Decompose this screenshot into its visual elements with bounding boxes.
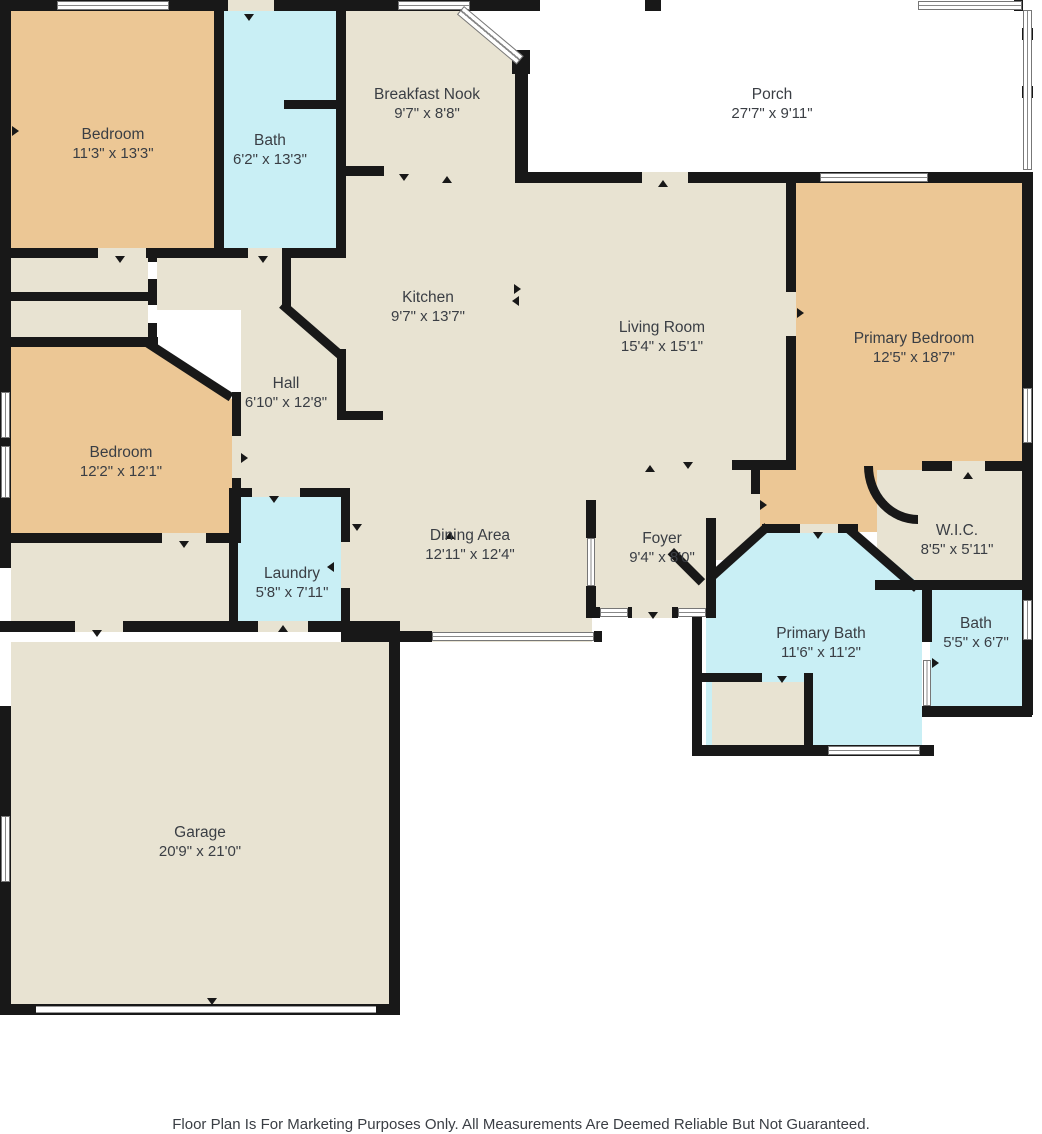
wall-segment <box>786 183 796 292</box>
door-opening <box>228 0 274 11</box>
room-label-breakfast-nook: Breakfast Nook 9'7" x 8'8" <box>374 85 480 123</box>
wall-segment <box>922 580 932 642</box>
room-name: Bath <box>233 131 307 150</box>
room-label-porch: Porch 27'7" x 9'11" <box>731 85 812 123</box>
room-label-laundry: Laundry 5'8" x 7'11" <box>256 564 329 602</box>
room-dims: 9'4" x 8'0" <box>629 548 695 567</box>
window-glyph <box>918 1 1022 10</box>
room-fill-primary-bedroom <box>796 183 1022 470</box>
room-fill-closet-1 <box>11 258 148 292</box>
wall-segment <box>232 392 241 436</box>
wall-segment <box>702 673 762 682</box>
room-name: W.I.C. <box>921 521 994 540</box>
door-arrow-icon <box>207 998 217 1005</box>
room-dims: 6'10" x 12'8" <box>245 393 327 412</box>
door-opening <box>341 542 350 588</box>
wall-segment <box>688 172 786 183</box>
door-arrow-icon <box>645 465 655 472</box>
wall-segment <box>692 614 702 756</box>
wall-segment <box>586 607 600 618</box>
wall-segment <box>0 621 75 632</box>
wall-segment <box>706 518 716 614</box>
window-glyph <box>1023 10 1032 170</box>
door-opening <box>952 461 985 471</box>
door-arrow-icon <box>777 676 787 683</box>
window-glyph <box>432 632 594 641</box>
room-label-hall: Hall 6'10" x 12'8" <box>245 374 327 412</box>
room-label-living-room: Living Room 15'4" x 15'1" <box>619 318 705 356</box>
wall-segment <box>341 488 350 542</box>
wall-segment <box>146 248 248 258</box>
window-glyph <box>1023 388 1032 443</box>
door-arrow-icon <box>797 308 804 318</box>
room-fill-bath-closet <box>712 682 804 745</box>
window-glyph <box>828 746 920 755</box>
wall-segment <box>11 292 148 301</box>
room-dims: 9'7" x 8'8" <box>374 104 480 123</box>
wall-segment <box>282 248 291 310</box>
door-arrow-icon <box>514 284 521 294</box>
window-glyph <box>1 392 10 438</box>
wall-segment <box>389 632 400 1015</box>
wall-segment <box>336 166 384 176</box>
door-arrow-icon <box>179 541 189 548</box>
room-fill-bath-1 <box>224 11 336 248</box>
window-glyph <box>1 446 10 498</box>
disclaimer-text: Floor Plan Is For Marketing Purposes Onl… <box>172 1116 870 1133</box>
door-arrow-icon <box>92 630 102 637</box>
room-fill-closet-2 <box>11 301 148 337</box>
room-dims: 12'11" x 12'4" <box>425 545 515 564</box>
room-name: Primary Bath <box>776 624 866 643</box>
garage-door-glyph <box>36 1006 376 1013</box>
room-dims: 15'4" x 15'1" <box>619 337 705 356</box>
door-arrow-icon <box>813 532 823 539</box>
door-arrow-icon <box>760 500 767 510</box>
door-arrow-icon <box>352 524 362 531</box>
door-arrow-icon <box>683 462 693 469</box>
room-name: Hall <box>245 374 327 393</box>
room-name: Living Room <box>619 318 705 337</box>
room-dims: 8'5" x 5'11" <box>921 540 994 559</box>
door-arrow-icon <box>115 256 125 263</box>
wall-segment <box>284 100 336 109</box>
room-dims: 6'2" x 13'3" <box>233 150 307 169</box>
door-arrow-icon <box>658 180 668 187</box>
room-dims: 12'5" x 18'7" <box>854 348 975 367</box>
room-name: Bedroom <box>80 443 162 462</box>
room-dims: 27'7" x 9'11" <box>731 104 812 123</box>
room-name: Laundry <box>256 564 329 583</box>
wall-segment <box>515 172 642 183</box>
wall-segment <box>0 533 162 543</box>
door-arrow-icon <box>963 472 973 479</box>
room-name: Dining Area <box>425 526 515 545</box>
door-arrow-icon <box>932 658 939 668</box>
door-arrow-icon <box>399 174 409 181</box>
room-dims: 11'6" x 11'2" <box>776 643 866 662</box>
wall-segment <box>148 279 157 305</box>
wall-segment <box>922 461 952 471</box>
room-dims: 11'3" x 13'3" <box>72 144 153 163</box>
window-glyph <box>678 608 706 617</box>
room-name: Garage <box>159 823 241 842</box>
room-label-kitchen: Kitchen 9'7" x 13'7" <box>391 288 465 326</box>
wall-segment <box>751 460 760 494</box>
door-arrow-icon <box>241 453 248 463</box>
room-name: Primary Bedroom <box>854 329 975 348</box>
door-opening <box>232 436 241 478</box>
door-arrow-icon <box>269 496 279 503</box>
wall-segment <box>341 631 432 642</box>
room-name: Bath <box>943 614 1009 633</box>
wall-segment <box>148 248 157 262</box>
room-name: Bedroom <box>72 125 153 144</box>
room-label-dining-area: Dining Area 12'11" x 12'4" <box>425 526 515 564</box>
room-name: Porch <box>731 85 812 104</box>
room-label-bath-2: Bath 5'5" x 6'7" <box>943 614 1009 652</box>
room-dims: 12'2" x 12'1" <box>80 462 162 481</box>
wall-segment <box>645 0 661 11</box>
door-arrow-icon <box>12 126 19 136</box>
room-dims: 5'8" x 7'11" <box>256 583 329 602</box>
window-glyph <box>923 660 931 706</box>
room-fill-entry-strip <box>11 543 241 631</box>
wall-segment <box>282 248 346 258</box>
room-label-foyer: Foyer 9'4" x 8'0" <box>629 529 695 567</box>
door-arrow-icon <box>278 625 288 632</box>
room-dims: 20'9" x 21'0" <box>159 842 241 861</box>
window-glyph <box>398 1 470 10</box>
door-arrow-icon <box>244 14 254 21</box>
room-name: Breakfast Nook <box>374 85 480 104</box>
door-arrow-icon <box>648 612 658 619</box>
wall-segment <box>337 411 383 420</box>
room-fill-primary-passage <box>760 470 877 532</box>
room-dims: 5'5" x 6'7" <box>943 633 1009 652</box>
room-label-bath-1: Bath 6'2" x 13'3" <box>233 131 307 169</box>
wall-segment <box>922 706 1032 717</box>
window-glyph <box>1 816 10 882</box>
window-glyph <box>600 608 628 617</box>
room-label-wic: W.I.C. 8'5" x 5'11" <box>921 521 994 559</box>
wall-segment <box>0 337 158 347</box>
wall-segment <box>214 11 224 248</box>
room-label-bedroom-1: Bedroom 11'3" x 13'3" <box>72 125 153 163</box>
room-name: Foyer <box>629 529 695 548</box>
room-dims: 9'7" x 13'7" <box>391 307 465 326</box>
wall-segment <box>336 11 346 255</box>
door-arrow-icon <box>442 176 452 183</box>
wall-segment <box>594 631 602 642</box>
wall-segment <box>0 248 98 258</box>
wall-segment <box>804 673 813 748</box>
window-glyph <box>587 538 595 586</box>
floor-plan: Bedroom 11'3" x 13'3" Bath 6'2" x 13'3" … <box>0 0 1042 1134</box>
room-label-primary-bath: Primary Bath 11'6" x 11'2" <box>776 624 866 662</box>
window-glyph <box>1023 600 1032 640</box>
wall-segment <box>123 621 258 632</box>
room-name: Kitchen <box>391 288 465 307</box>
wall-segment <box>875 580 1032 590</box>
room-label-garage: Garage 20'9" x 21'0" <box>159 823 241 861</box>
door-arrow-icon <box>512 296 519 306</box>
window-glyph <box>820 173 928 182</box>
room-fill-corridor <box>157 258 291 310</box>
door-arrow-icon <box>258 256 268 263</box>
room-label-bedroom-2: Bedroom 12'2" x 12'1" <box>80 443 162 481</box>
wall-segment <box>586 500 596 538</box>
wall-segment <box>229 488 238 632</box>
window-glyph <box>57 1 169 10</box>
door-opening <box>786 292 796 336</box>
wall-segment <box>337 349 346 420</box>
wall-segment <box>786 336 796 470</box>
room-label-primary-bedroom: Primary Bedroom 12'5" x 18'7" <box>854 329 975 367</box>
